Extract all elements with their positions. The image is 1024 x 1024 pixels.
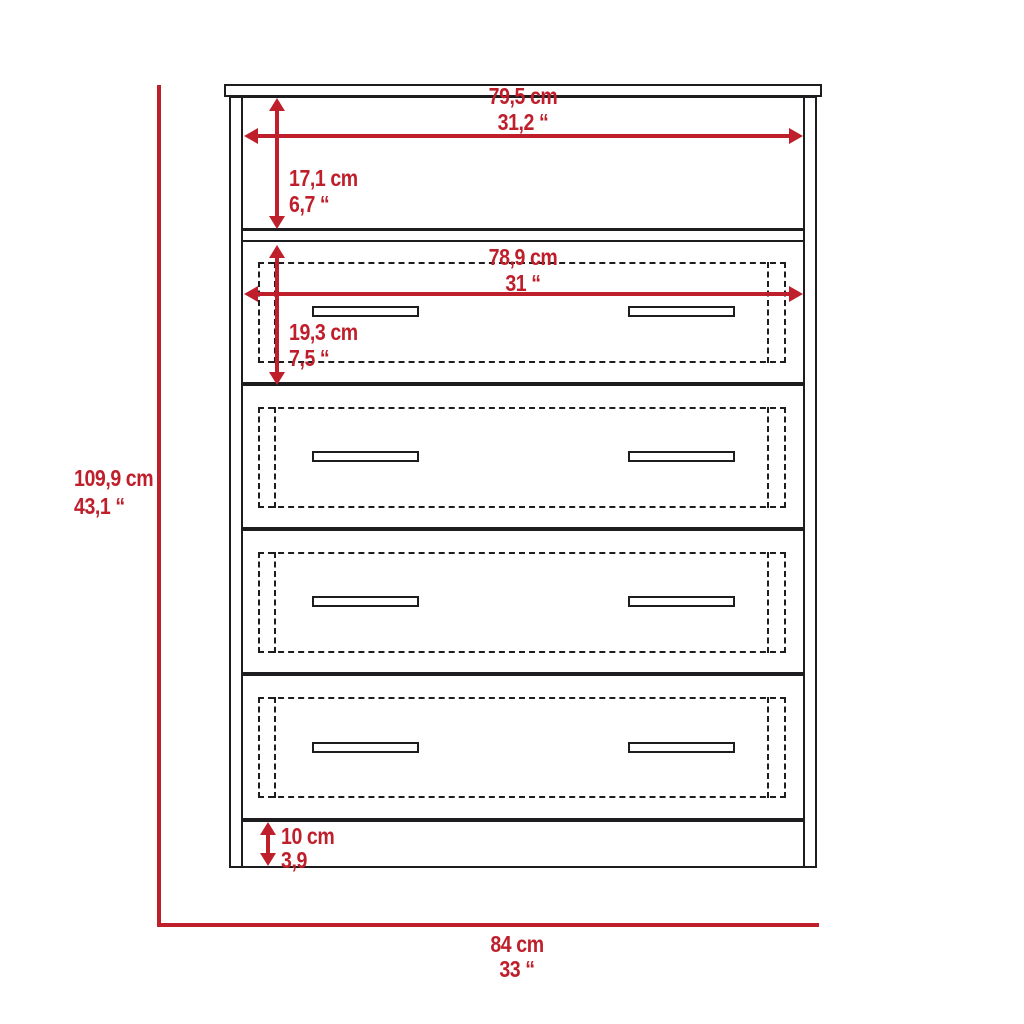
shelf-board-bottom-line: [243, 240, 803, 242]
shelf-height-in-label: 6,7 “: [289, 192, 329, 216]
overall-height-line: [157, 85, 161, 927]
arrow-down-icon: [269, 372, 285, 385]
arrow-up-icon: [260, 822, 276, 835]
right-panel-inner-line: [803, 98, 805, 866]
drawer-1-handle-left: [312, 306, 419, 317]
drawer-2-handle-left: [312, 451, 419, 462]
arrow-left-icon: [244, 286, 258, 302]
shelf-width-cm-label: 79,5 cm: [421, 84, 625, 108]
drawer-3-left-side-line: [274, 552, 276, 653]
divider-2: [243, 527, 803, 531]
base-height-cm-label: 10 cm: [281, 824, 334, 848]
drawer-2-handle-right: [628, 451, 735, 462]
overall-width-line: [157, 923, 819, 927]
arrow-right-icon: [789, 128, 803, 144]
overall-height-in-label: 43,1 “: [74, 494, 125, 518]
drawer-2-left-side-line: [274, 407, 276, 508]
drawer-2-right-side-line: [767, 407, 769, 508]
drawer-height-in-label: 7,5 “: [289, 346, 329, 370]
drawer-3-handle-left: [312, 596, 419, 607]
arrow-right-icon: [789, 286, 803, 302]
arrow-up-icon: [269, 98, 285, 111]
drawer-3-right-side-line: [767, 552, 769, 653]
arrow-up-icon: [269, 245, 285, 258]
drawer-3-handle-right: [628, 596, 735, 607]
arrow-down-icon: [260, 853, 276, 866]
overall-width-in-label: 33 “: [415, 957, 619, 981]
divider-3: [243, 672, 803, 676]
drawer-height-line: [275, 254, 279, 376]
drawer-1-right-side-line: [767, 262, 769, 363]
overall-width-cm-label: 84 cm: [415, 932, 619, 956]
drawer-4-right-side-line: [767, 697, 769, 798]
drawer-1-handle-right: [628, 306, 735, 317]
drawer-width-in-label: 31 “: [421, 271, 625, 295]
drawer-width-cm-label: 78,9 cm: [421, 245, 625, 269]
drawer-4-handle-left: [312, 742, 419, 753]
shelf-width-in-label: 31,2 “: [421, 110, 625, 134]
overall-height-cm-label: 109,9 cm: [74, 466, 153, 490]
left-panel-inner-line: [241, 98, 243, 866]
drawer-height-cm-label: 19,3 cm: [289, 320, 358, 344]
divider-1: [243, 382, 803, 386]
shelf-height-line: [275, 107, 279, 220]
base-height-in-label: 3,9: [281, 848, 307, 872]
shelf-board-top-line: [243, 228, 803, 231]
dimension-diagram: 109,9 cm 43,1 “ 84 cm 33 “ 79,5 cm 31,2 …: [0, 0, 1024, 1024]
plinth-top-line: [243, 818, 803, 822]
shelf-height-cm-label: 17,1 cm: [289, 166, 358, 190]
drawer-4-handle-right: [628, 742, 735, 753]
arrow-down-icon: [269, 216, 285, 229]
arrow-left-icon: [244, 128, 258, 144]
drawer-4-left-side-line: [274, 697, 276, 798]
